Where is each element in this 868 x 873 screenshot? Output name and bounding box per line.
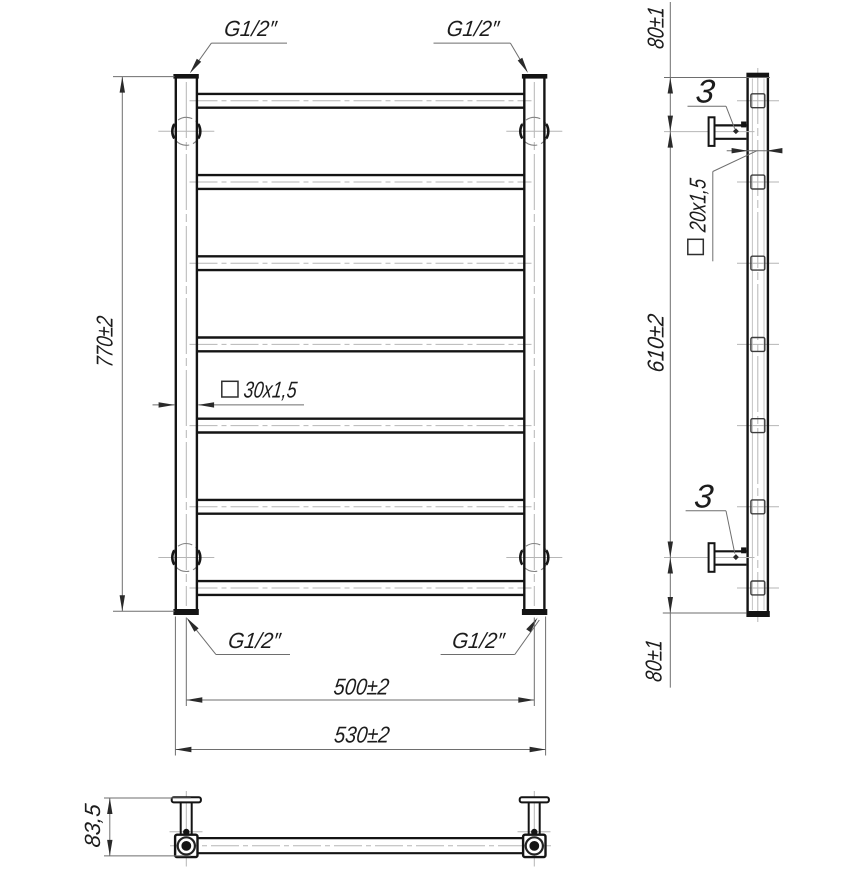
svg-text:G1/2″: G1/2″ <box>223 16 279 41</box>
svg-text:G1/2″: G1/2″ <box>451 628 507 653</box>
svg-text:770±2: 770±2 <box>92 314 118 368</box>
svg-text:80±1: 80±1 <box>643 5 669 50</box>
svg-text:G1/2″: G1/2″ <box>445 16 501 41</box>
svg-text:30x1,5: 30x1,5 <box>242 377 298 403</box>
svg-text:610±2: 610±2 <box>643 312 669 373</box>
svg-text:80±1: 80±1 <box>641 638 667 683</box>
svg-text:500±2: 500±2 <box>332 674 390 700</box>
svg-text:20x1,5: 20x1,5 <box>685 177 711 234</box>
svg-text:G1/2″: G1/2″ <box>227 628 283 653</box>
svg-text:83,5: 83,5 <box>80 802 105 849</box>
svg-text:530±2: 530±2 <box>333 722 391 748</box>
